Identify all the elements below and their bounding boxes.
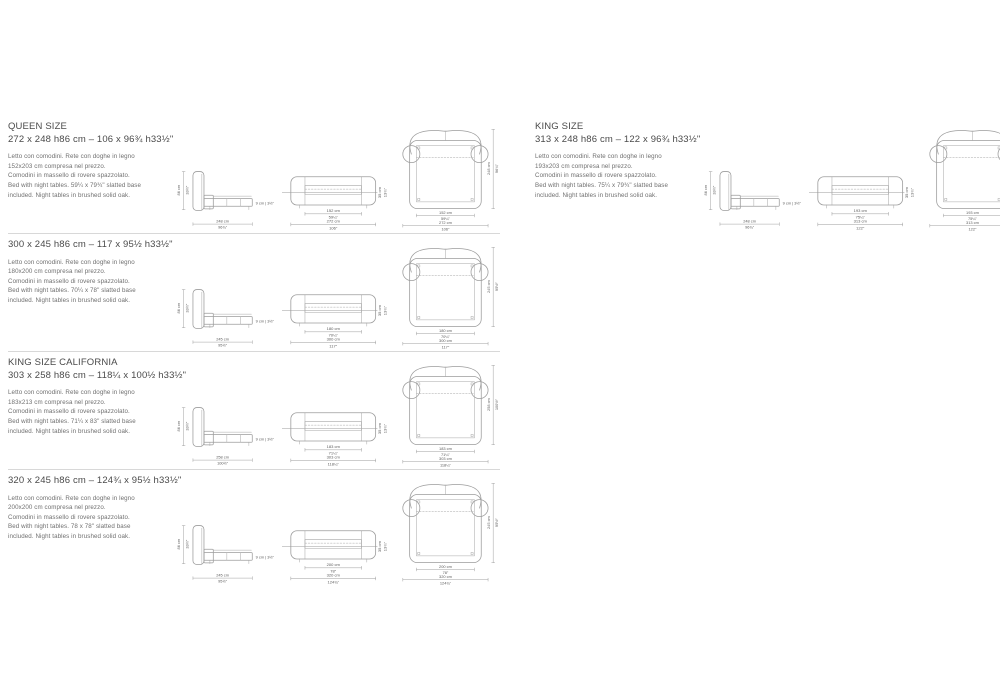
dim-label-height-cm: 86 cm: [176, 185, 181, 196]
depth-dimension: 248 cm 96¾": [486, 129, 499, 208]
description-line: included. Night tables in brushed solid …: [8, 191, 178, 201]
depth-dimension: 258 cm 100½": [486, 365, 499, 444]
length-dimension: 245 cm 95½": [193, 572, 252, 583]
dim-label-rail-in: 13¾": [383, 541, 388, 551]
description-line: 183x213 cm compresa nel prezzo.: [8, 398, 178, 408]
side-view-drawing: 86 cm 33½" 248 cm 96¾" 9 cm | 3½": [703, 158, 803, 236]
description-line: Bed with night tables. 75¼ x 79¾" slatte…: [535, 181, 705, 191]
dim-label-overall-cm: 303 cm: [439, 456, 452, 461]
overall-width-dimension: 272 cm 106": [291, 219, 376, 231]
dim-label-depth-in: 100½": [494, 398, 499, 410]
bed-spec-section: QUEEN SIZE 272 x 248 h86 cm – 106 x 96¾ …: [8, 116, 500, 234]
spec-sheet-page: QUEEN SIZE 272 x 248 h86 cm – 106 x 96¾ …: [0, 0, 1000, 700]
technical-drawings: 86 cm 33½" 248 cm 96¾" 9 cm | 3½": [176, 120, 506, 233]
spec-text-block: 300 x 245 h86 cm – 117 x 95½ h33½" Letto…: [8, 239, 178, 306]
description-line: Comodini in massello di rovere spazzolat…: [8, 407, 178, 417]
description-line: Letto con comodini. Rete con doghe in le…: [8, 152, 178, 162]
rail-height-dimension: 35 cm 13¾": [377, 304, 388, 316]
size-dimensions: 303 x 258 h86 cm – 118¼ x 100½ h33½": [8, 370, 178, 383]
dim-label-length-in: 95½": [218, 579, 228, 584]
description-line: included. Night tables in brushed solid …: [535, 191, 705, 201]
dim-label-mattress-cm: 193 cm: [854, 208, 868, 213]
dim-label-height-in: 33½": [185, 303, 190, 313]
description: Letto con comodini. Rete con doghe in le…: [8, 152, 178, 200]
dim-label-mattress-cm: 152 cm: [327, 208, 341, 213]
description-line: Bed with night tables. 70¼ x 78" slatted…: [8, 286, 178, 296]
spec-text-block: QUEEN SIZE 272 x 248 h86 cm – 106 x 96¾ …: [8, 121, 178, 200]
dim-label-overall-cm: 320 cm: [439, 574, 452, 579]
dim-label-height-cm: 86 cm: [176, 303, 181, 314]
dim-label-length-in: 96¾": [745, 225, 755, 230]
dim-label-mattress-cm: 200 cm: [439, 564, 452, 569]
spec-text-block: 320 x 245 h86 cm – 124¾ x 95½ h33½" Lett…: [8, 475, 178, 542]
dim-label-mattress-cm: 183 cm: [327, 444, 341, 449]
description: Letto con comodini. Rete con doghe in le…: [8, 258, 178, 306]
bed-spec-section: KING SIZE CALIFORNIA 303 x 258 h86 cm – …: [8, 352, 500, 470]
length-dimension: 248 cm 96¾": [193, 218, 252, 229]
size-dimensions: 300 x 245 h86 cm – 117 x 95½ h33½": [8, 239, 178, 252]
dim-label-length-cm: 248 cm: [216, 218, 229, 223]
technical-drawings: 86 cm 33½" 245 cm 95½" 9 cm | 3½": [176, 474, 506, 587]
description-line: Comodini in massello di rovere spazzolat…: [8, 277, 178, 287]
description: Letto con comodini. Rete con doghe in le…: [8, 388, 178, 436]
dim-label-overall-in: 122": [856, 225, 865, 230]
overall-width-dimension: 303 cm 118¼": [403, 456, 488, 467]
dim-label-overall-in: 118¼": [440, 462, 451, 467]
dim-label-mattress-cm: 180 cm: [439, 328, 452, 333]
description-line: Bed with night tables. 78 x 78" slatted …: [8, 522, 178, 532]
description-line: 152x203 cm compresa nel prezzo.: [8, 162, 178, 172]
description-line: Letto con comodini. Rete con doghe in le…: [8, 388, 178, 398]
dim-label-rail-cm: 35 cm: [377, 186, 382, 198]
dim-label-rail-cm: 35 cm: [377, 540, 382, 552]
overall-width-dimension: 300 cm 117": [403, 338, 488, 349]
dim-label-mattress-cm: 200 cm: [327, 562, 341, 567]
dim-label-height-cm: 86 cm: [176, 539, 181, 550]
technical-drawings: 86 cm 33½" 245 cm 95½" 9 cm | 3½": [176, 238, 506, 351]
height-dimension: 86 cm 33½": [176, 290, 189, 328]
top-view-drawing: 193 cm 75¼" 313 cm 122" 248 cm: [923, 120, 1000, 233]
dim-label-mattress-cm: 152 cm: [439, 210, 452, 215]
dim-label-depth-cm: 245 cm: [486, 280, 491, 293]
dim-label-overall-in: 117": [329, 343, 337, 348]
front-view-drawing: 183 cm 71¼" 303 cm 118¼" 35 cm 13¾": [282, 388, 388, 469]
bed-spec-section: KING SIZE 313 x 248 h86 cm – 122 x 96¾ h…: [535, 116, 993, 234]
dim-label-overall-cm: 300 cm: [327, 337, 341, 342]
description-line: 193x203 cm compresa nel prezzo.: [535, 162, 705, 172]
dim-label-overall-in: 106": [441, 226, 450, 231]
description-line: Letto con comodini. Rete con doghe in le…: [535, 152, 705, 162]
right-column: KING SIZE 313 x 248 h86 cm – 122 x 96¾ h…: [535, 116, 993, 234]
dim-label-rail-cm: 35 cm: [904, 186, 909, 198]
dim-label-mattress-cm: 183 cm: [439, 446, 452, 451]
description: Letto con comodini. Rete con doghe in le…: [535, 152, 705, 200]
overall-width-dimension: 320 cm 124¾": [403, 574, 488, 585]
description-line: included. Night tables in brushed solid …: [8, 532, 178, 542]
description-line: 200x200 cm compresa nel prezzo.: [8, 503, 178, 513]
front-view-drawing: 152 cm 59¼" 272 cm 106" 35 cm 13¾": [282, 152, 388, 233]
depth-dimension: 245 cm 95½": [486, 483, 499, 562]
dim-label-length-cm: 258 cm: [216, 454, 229, 459]
side-view-drawing: 86 cm 33½" 245 cm 95½" 9 cm | 3½": [176, 512, 276, 590]
overall-width-dimension: 300 cm 117": [291, 337, 376, 349]
rail-height-dimension: 35 cm 13¾": [904, 186, 915, 198]
top-view-drawing: 152 cm 59¼" 272 cm 106" 248 cm: [396, 120, 500, 233]
dim-label-clearance: 9 cm | 3½": [256, 555, 275, 560]
top-view-drawing: 200 cm 78" 320 cm 124¾" 245 cm: [396, 474, 500, 587]
description-line: Letto con comodini. Rete con doghe in le…: [8, 258, 178, 268]
size-dimensions: 320 x 245 h86 cm – 124¾ x 95½ h33½": [8, 475, 178, 488]
rail-height-dimension: 35 cm 13¾": [377, 422, 388, 434]
description-line: Bed with night tables. 59¼ x 79¾" slatte…: [8, 181, 178, 191]
dim-label-height-in: 33½": [712, 185, 717, 195]
dim-label-overall-in: 124¾": [327, 579, 339, 584]
height-dimension: 86 cm 33½": [176, 172, 189, 210]
bed-spec-section: 300 x 245 h86 cm – 117 x 95½ h33½" Letto…: [8, 234, 500, 352]
spec-text-block: KING SIZE 313 x 248 h86 cm – 122 x 96¾ h…: [535, 121, 705, 200]
dim-label-overall-in: 118¼": [328, 461, 340, 466]
front-view-drawing: 193 cm 75¼" 313 cm 122" 35 cm 13¾": [809, 152, 915, 233]
rail-height-dimension: 35 cm 13¾": [377, 186, 388, 198]
dim-label-mattress-cm: 180 cm: [327, 326, 341, 331]
size-dimensions: 272 x 248 h86 cm – 106 x 96¾ h33½": [8, 134, 178, 147]
dim-label-overall-in: 122": [968, 226, 977, 231]
side-view-drawing: 86 cm 33½" 258 cm 100½" 9 cm | 3½": [176, 394, 276, 472]
dim-label-depth-in: 96¾": [494, 163, 499, 173]
dim-label-overall-cm: 313 cm: [854, 219, 868, 224]
dim-label-overall-cm: 320 cm: [327, 573, 341, 578]
description-line: 180x200 cm compresa nel prezzo.: [8, 267, 178, 277]
front-view-drawing: 180 cm 70¼" 300 cm 117" 35 cm 13¾": [282, 270, 388, 351]
dim-label-depth-in: 95½": [494, 517, 499, 527]
technical-drawings: 86 cm 33½" 248 cm 96¾" 9 cm | 3½": [703, 120, 1000, 233]
dim-label-clearance: 9 cm | 3½": [783, 201, 802, 206]
dim-label-overall-cm: 313 cm: [966, 220, 979, 225]
dim-label-overall-in: 106": [329, 225, 338, 230]
dim-label-rail-in: 13¾": [383, 423, 388, 433]
height-dimension: 86 cm 33½": [176, 526, 189, 564]
rail-height-dimension: 35 cm 13¾": [377, 540, 388, 552]
dim-label-clearance: 9 cm | 3½": [256, 437, 275, 442]
overall-width-dimension: 303 cm 118¼": [291, 455, 376, 467]
dim-label-length-in: 95½": [218, 343, 228, 348]
size-title: QUEEN SIZE: [8, 121, 178, 134]
description-line: included. Night tables in brushed solid …: [8, 296, 178, 306]
dim-label-clearance: 9 cm | 3½": [256, 201, 275, 206]
dim-label-length-in: 96¾": [218, 225, 228, 230]
description-line: Comodini in massello di rovere spazzolat…: [8, 513, 178, 523]
description-line: included. Night tables in brushed solid …: [8, 427, 178, 437]
dim-label-depth-in: 95½": [494, 281, 499, 291]
length-dimension: 248 cm 96¾": [720, 218, 779, 229]
left-column: QUEEN SIZE 272 x 248 h86 cm – 106 x 96¾ …: [8, 116, 500, 588]
size-title: KING SIZE CALIFORNIA: [8, 357, 178, 370]
dim-label-rail-in: 13¾": [383, 187, 388, 197]
dim-label-rail-in: 13¾": [383, 305, 388, 315]
dim-label-clearance: 9 cm | 3½": [256, 319, 275, 324]
overall-width-dimension: 313 cm 122": [818, 219, 903, 231]
dim-label-overall-cm: 303 cm: [327, 455, 341, 460]
dim-label-length-cm: 248 cm: [743, 218, 756, 223]
length-dimension: 245 cm 95½": [193, 336, 252, 347]
spec-text-block: KING SIZE CALIFORNIA 303 x 258 h86 cm – …: [8, 357, 178, 436]
height-dimension: 86 cm 33½": [176, 408, 189, 446]
description-line: Comodini in massello di rovere spazzolat…: [535, 171, 705, 181]
technical-drawings: 86 cm 33½" 258 cm 100½" 9 cm | 3½": [176, 356, 506, 469]
dim-label-overall-in: 124¾": [440, 580, 452, 585]
dim-label-length-in: 100½": [217, 461, 229, 466]
dim-label-depth-cm: 248 cm: [486, 162, 491, 175]
dim-label-height-cm: 86 cm: [176, 421, 181, 432]
dim-label-height-in: 33½": [185, 421, 190, 431]
front-view-drawing: 200 cm 78" 320 cm 124¾" 35 cm 13¾": [282, 506, 388, 587]
dim-label-overall-cm: 272 cm: [439, 220, 452, 225]
overall-width-dimension: 320 cm 124¾": [291, 573, 376, 585]
description-line: Letto con comodini. Rete con doghe in le…: [8, 494, 178, 504]
dim-label-length-cm: 245 cm: [216, 572, 229, 577]
side-view-drawing: 86 cm 33½" 248 cm 96¾" 9 cm | 3½": [176, 158, 276, 236]
dim-label-depth-cm: 245 cm: [486, 516, 491, 529]
dim-label-length-cm: 245 cm: [216, 336, 229, 341]
dim-label-height-in: 33½": [185, 185, 190, 195]
overall-width-dimension: 313 cm 122": [930, 220, 1000, 231]
height-dimension: 86 cm 33½": [703, 172, 716, 210]
depth-dimension: 245 cm 95½": [486, 247, 499, 326]
top-view-drawing: 183 cm 71¼" 303 cm 118¼" 258 c: [396, 356, 500, 469]
length-dimension: 258 cm 100½": [193, 454, 252, 465]
description: Letto con comodini. Rete con doghe in le…: [8, 494, 178, 542]
dim-label-height-cm: 86 cm: [703, 185, 708, 196]
dim-label-height-in: 33½": [185, 539, 190, 549]
description-line: Comodini in massello di rovere spazzolat…: [8, 171, 178, 181]
dim-label-overall-in: 117": [442, 344, 450, 349]
dim-label-overall-cm: 300 cm: [439, 338, 452, 343]
side-view-drawing: 86 cm 33½" 245 cm 95½" 9 cm | 3½": [176, 276, 276, 354]
dim-label-depth-cm: 258 cm: [486, 398, 491, 411]
dim-label-mattress-cm: 193 cm: [966, 210, 979, 215]
size-title: KING SIZE: [535, 121, 705, 134]
top-view-drawing: 180 cm 70¼" 300 cm 117" 245 cm: [396, 238, 500, 351]
dim-label-rail-cm: 35 cm: [377, 422, 382, 434]
dim-label-rail-in: 13¾": [910, 187, 915, 197]
dim-label-rail-cm: 35 cm: [377, 304, 382, 316]
dim-label-overall-cm: 272 cm: [327, 219, 341, 224]
bed-spec-section: 320 x 245 h86 cm – 124¾ x 95½ h33½" Lett…: [8, 470, 500, 588]
size-dimensions: 313 x 248 h86 cm – 122 x 96¾ h33½": [535, 134, 705, 147]
description-line: Bed with night tables. 71¼ x 83" slatted…: [8, 417, 178, 427]
overall-width-dimension: 272 cm 106": [403, 220, 488, 231]
